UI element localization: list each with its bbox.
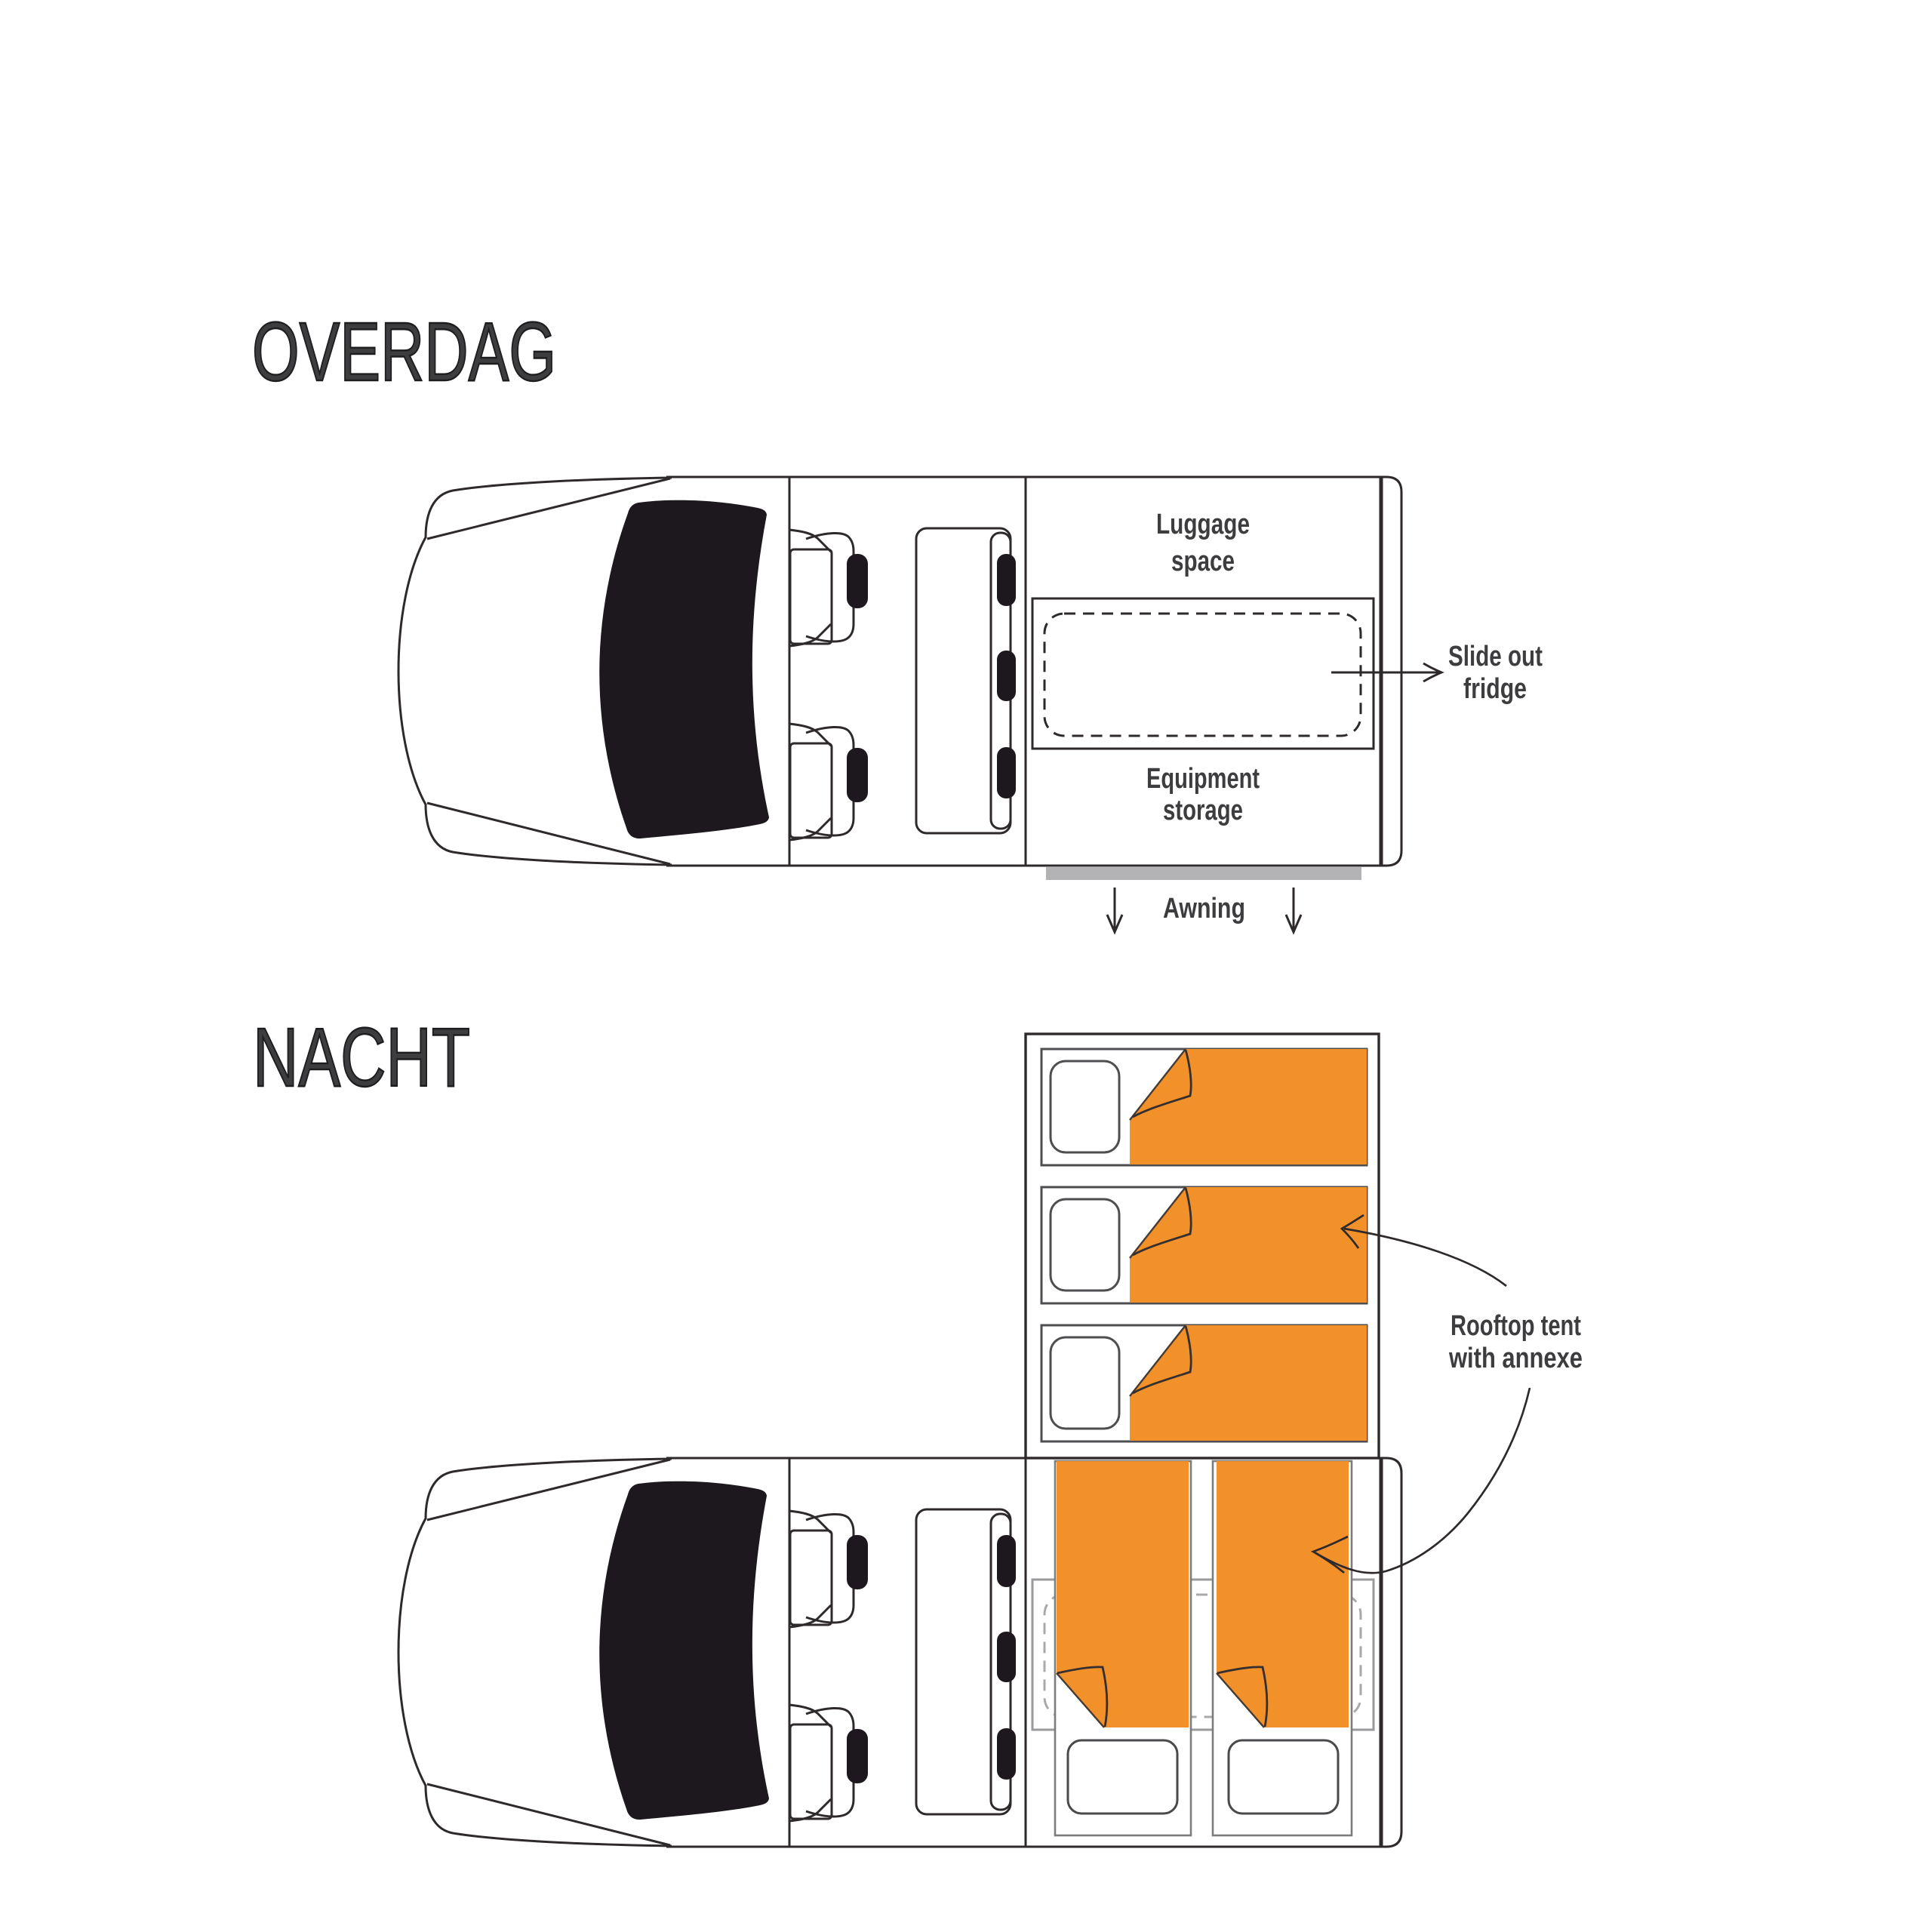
svg-text:fridge: fridge — [1463, 673, 1527, 705]
svg-text:storage: storage — [1163, 795, 1243, 826]
svg-text:Awning: Awning — [1163, 893, 1245, 924]
svg-text:Slide out: Slide out — [1448, 641, 1543, 672]
svg-text:space: space — [1171, 546, 1235, 577]
svg-text:Luggage: Luggage — [1156, 509, 1250, 540]
svg-text:OVERDAG: OVERDAG — [252, 306, 556, 398]
svg-text:NACHT: NACHT — [253, 1011, 470, 1104]
svg-text:with annexe: with annexe — [1448, 1343, 1583, 1374]
svg-text:Rooftop tent: Rooftop tent — [1451, 1310, 1581, 1342]
svg-text:Equipment: Equipment — [1146, 763, 1260, 795]
